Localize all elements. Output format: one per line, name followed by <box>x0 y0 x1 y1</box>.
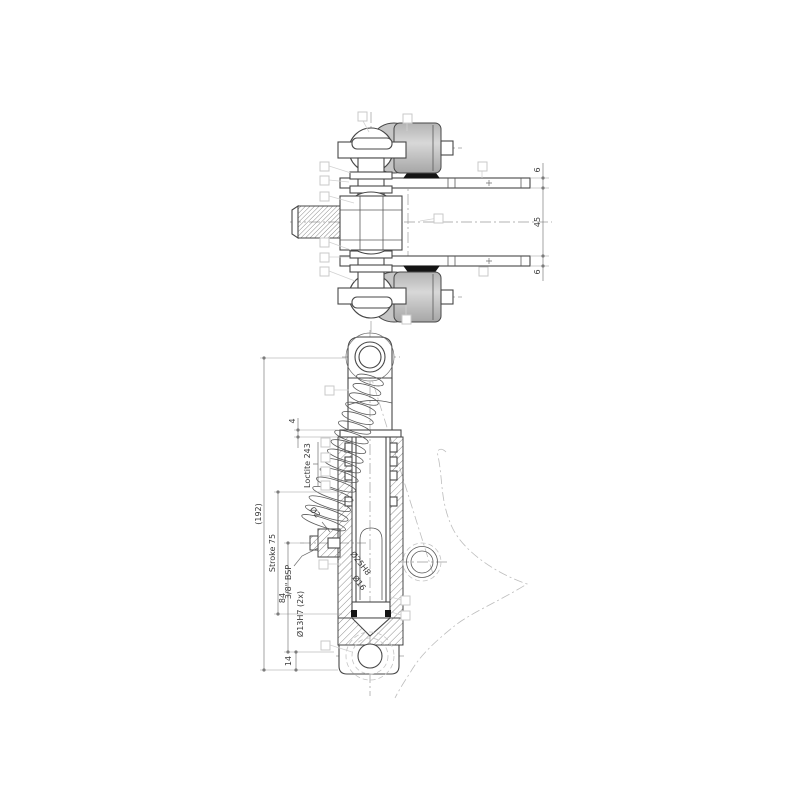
dim-overall-length: (192) <box>254 503 263 525</box>
base-pin-hole <box>358 644 382 668</box>
balloon-callout <box>320 162 329 171</box>
piston-seal <box>385 610 391 617</box>
balloon-callout <box>321 641 330 650</box>
label-pin-hole: Ø13H7 (2x) <box>295 591 305 637</box>
balloon-callout <box>321 453 330 462</box>
dim-gland-height: 4 <box>288 418 297 423</box>
pin-slot <box>352 297 392 308</box>
balloon-callout <box>402 315 411 324</box>
balloon-callout <box>434 214 443 223</box>
phantom-bracket-outline <box>395 449 527 698</box>
section-view: (192) Stroke 75 84 14 4 3/8" B <box>254 330 527 698</box>
balloon-callout <box>403 114 412 123</box>
balloon-callout <box>401 611 410 620</box>
balloon-callout <box>320 238 329 247</box>
piston <box>352 602 390 618</box>
balloon-callout <box>479 267 488 276</box>
dim-stroke: Stroke 75 <box>268 534 277 572</box>
balloon-callout <box>325 386 334 395</box>
balloon-callout <box>320 176 329 185</box>
drawing-sheet: 6 45 6 <box>0 0 800 800</box>
balloon-callout <box>319 560 328 569</box>
piston-seal <box>351 610 357 617</box>
balloon-callout <box>320 192 329 201</box>
roller-stub-axle <box>441 141 453 155</box>
eye-bore <box>359 346 381 368</box>
dim-pin-to-base: 14 <box>284 656 293 666</box>
dim-arm-thickness-bottom: 6 <box>533 269 542 274</box>
port-hole <box>328 538 340 548</box>
balloon-callout <box>358 112 367 121</box>
rod-chamfer <box>292 206 298 238</box>
balloon-callout <box>321 467 330 476</box>
balloon-callout <box>320 253 329 262</box>
threaded-rod <box>292 206 340 238</box>
block <box>340 196 402 250</box>
balloon-callout <box>401 596 410 605</box>
roller-stub-axle <box>441 290 453 304</box>
balloon-callout <box>321 481 330 490</box>
flange <box>350 172 392 179</box>
plan-view: 6 45 6 <box>290 112 552 334</box>
balloon-callout <box>478 162 487 171</box>
piston-rod-section <box>351 437 391 618</box>
dim-arm-thickness-top: 6 <box>533 167 542 172</box>
dim-arms-gap: 45 <box>533 217 542 227</box>
balloon-callout <box>321 438 330 447</box>
port-fitting <box>310 529 340 557</box>
label-port-thread: 3/8" BSP <box>284 565 293 600</box>
flange <box>350 265 392 272</box>
note-adhesive: Loctite 243 <box>303 443 312 488</box>
drawing-canvas: 6 45 6 <box>0 0 800 800</box>
pin-slot <box>352 138 392 149</box>
balloon-callout <box>320 267 329 276</box>
